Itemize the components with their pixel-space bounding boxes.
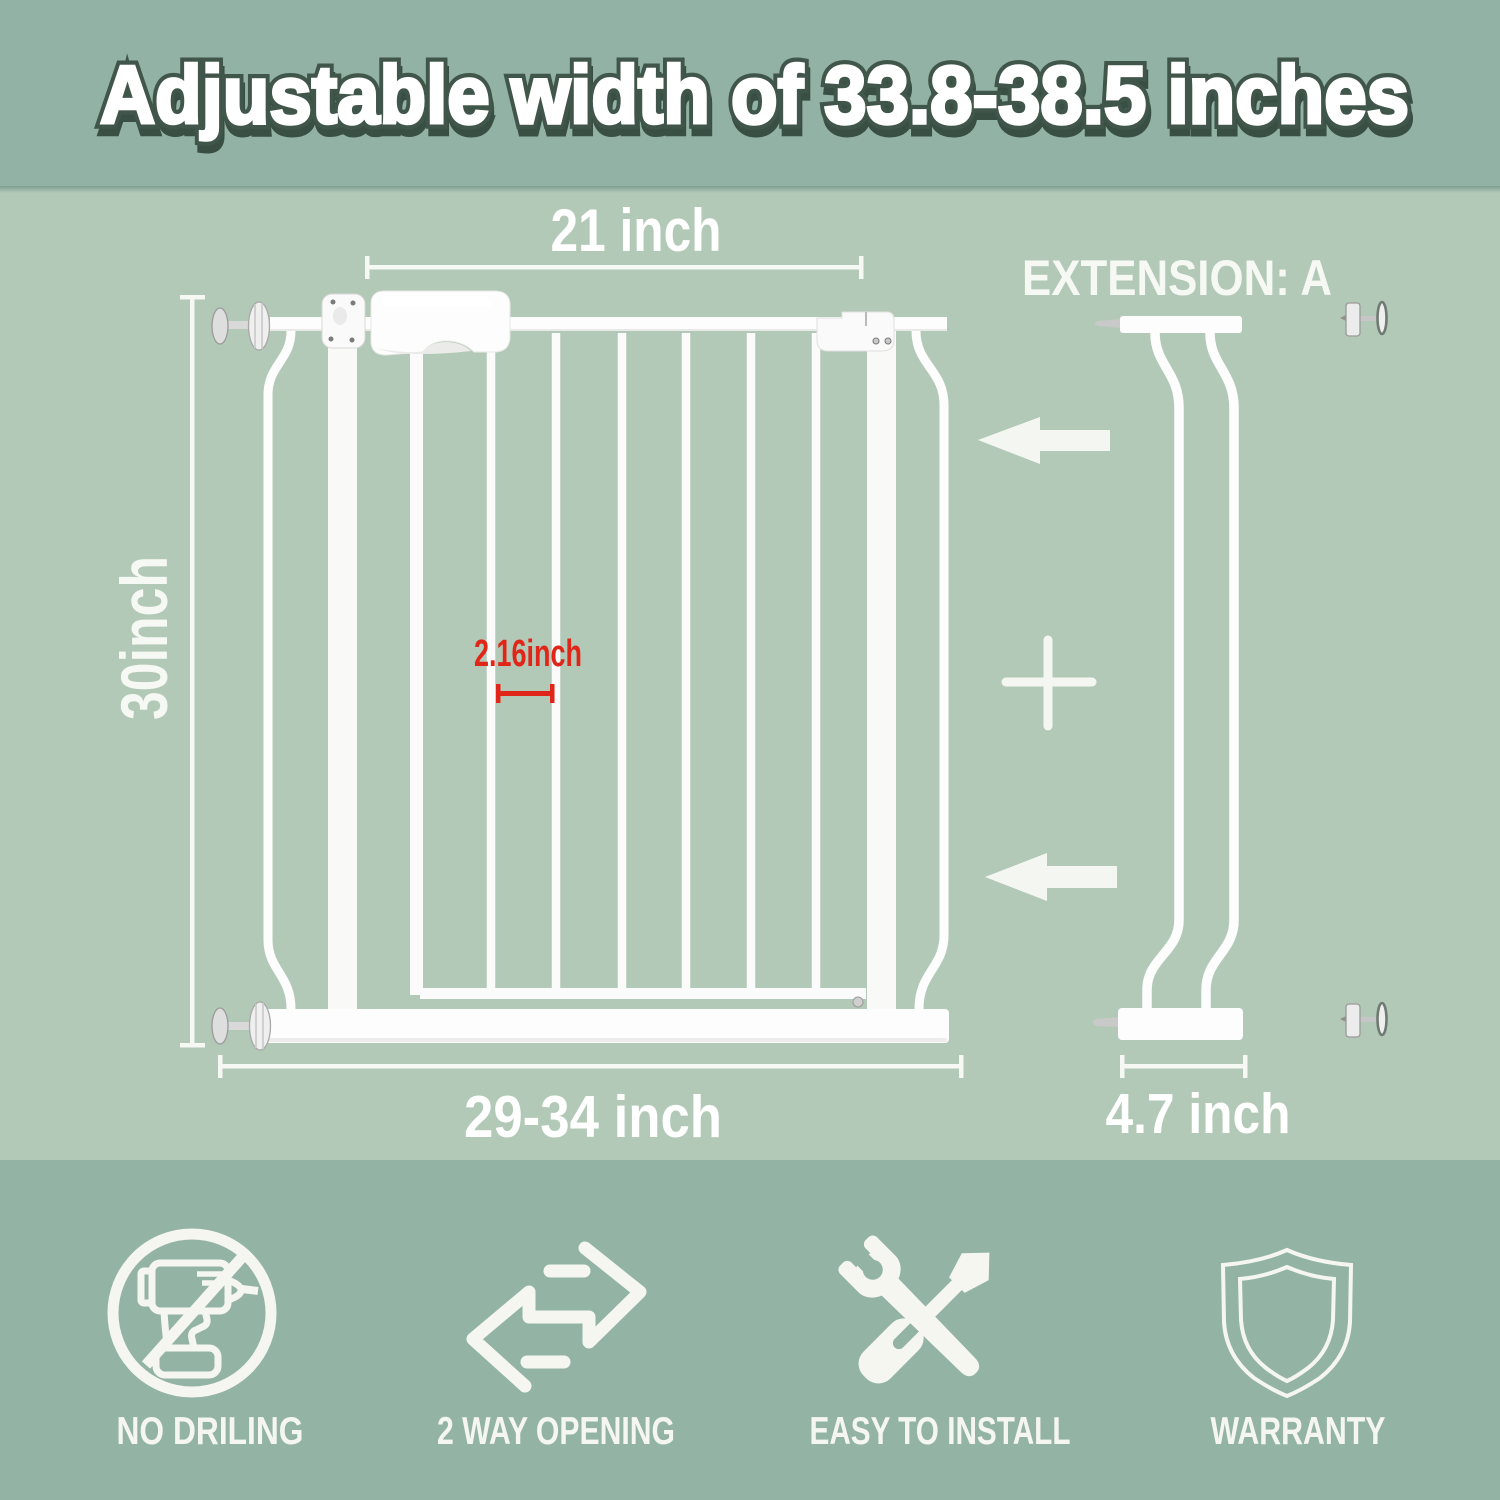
svg-text:EXTENSION: A: EXTENSION: A (1022, 250, 1332, 306)
svg-text:29-34 inch: 29-34 inch (464, 1084, 722, 1150)
svg-text:4.7 inch: 4.7 inch (1106, 1082, 1291, 1146)
svg-text:EASY TO INSTALL: EASY TO INSTALL (810, 1410, 1071, 1453)
svg-text:2.16inch: 2.16inch (474, 633, 582, 675)
svg-text:WARRANTY: WARRANTY (1211, 1410, 1386, 1453)
svg-text:NO DRILING: NO DRILING (117, 1410, 304, 1453)
svg-text:21 inch: 21 inch (551, 197, 722, 264)
svg-text:2 WAY OPENING: 2 WAY OPENING (437, 1410, 675, 1453)
svg-text:30inch: 30inch (107, 556, 181, 720)
svg-text:Adjustable width of 33.8-38.5: Adjustable width of 33.8-38.5 inches (100, 50, 1409, 141)
